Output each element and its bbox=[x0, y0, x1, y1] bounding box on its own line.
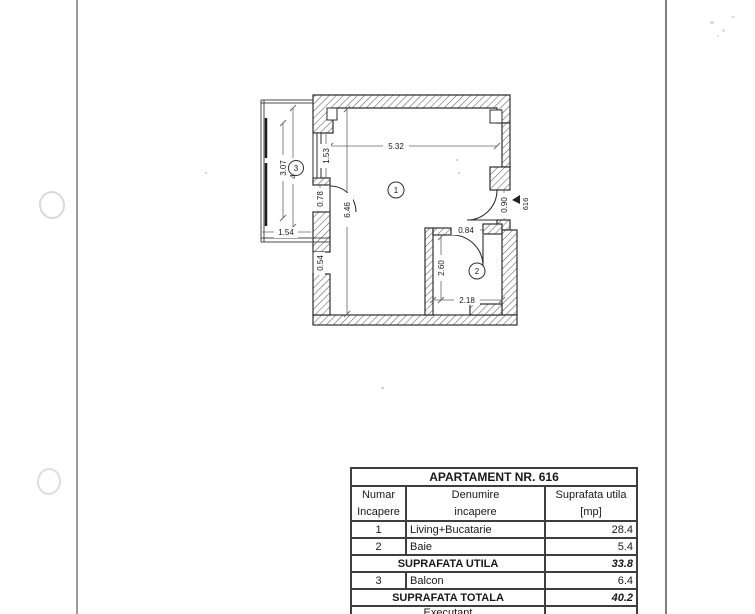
scan-speck bbox=[205, 172, 207, 174]
wall-bath-partition bbox=[425, 228, 433, 315]
scan-speck bbox=[717, 35, 719, 37]
apartment-number-label: 616 bbox=[521, 198, 530, 211]
dim-door-entrance: 0.90 bbox=[500, 197, 509, 213]
dim-window-left: 1.53 bbox=[322, 148, 331, 164]
column-header-denumire: Denumire incapere bbox=[406, 486, 545, 521]
table-row: 3 Balcon 6.4 bbox=[351, 572, 637, 589]
table-row: 2 Baie 5.4 bbox=[351, 538, 637, 555]
room-number-cell: 3 bbox=[351, 572, 406, 589]
total-value: 40.2 bbox=[545, 589, 637, 606]
wall-bath-right bbox=[502, 230, 517, 315]
dim-balcony-inner: 3.07 bbox=[279, 160, 288, 176]
column-header-line: Numar bbox=[353, 487, 404, 504]
floor-plan: 5.32 6.46 1.53 0.78 0.54 3.07 4.15 1.54 … bbox=[252, 85, 542, 335]
executant-label: Executant bbox=[351, 606, 545, 614]
room-number-cell: 1 bbox=[351, 521, 406, 538]
punch-hole bbox=[37, 189, 67, 220]
wall-bath-top bbox=[433, 228, 451, 235]
table-row: SUPRAFATA TOTALA 40.2 bbox=[351, 589, 637, 606]
wall-notch-right bbox=[490, 110, 502, 123]
scan-speck bbox=[722, 29, 725, 32]
table-row: APARTAMENT NR. 616 bbox=[351, 468, 637, 486]
room-area-cell: 28.4 bbox=[545, 521, 637, 538]
table-title: APARTAMENT NR. 616 bbox=[351, 468, 637, 486]
dim-door-balcony: 0.78 bbox=[316, 191, 325, 207]
entrance-arrow-icon bbox=[512, 195, 520, 204]
column-header-suprafata: Suprafata utila [mp] bbox=[545, 486, 637, 521]
scan-speck bbox=[710, 21, 714, 24]
room-number-cell: 2 bbox=[351, 538, 406, 555]
dim-door-bath: 0.84 bbox=[458, 226, 474, 235]
dim-bath-width: 2.18 bbox=[459, 296, 475, 305]
scan-speck bbox=[381, 387, 384, 389]
wall-top bbox=[313, 95, 510, 133]
table-row: Executant bbox=[351, 606, 637, 614]
sheet-left-border bbox=[76, 0, 78, 614]
wall-right-mid bbox=[502, 123, 510, 167]
room-name-cell: Balcon bbox=[406, 572, 545, 589]
wall-right-pilaster bbox=[490, 167, 510, 190]
scan-speck bbox=[458, 172, 460, 174]
room-label-balcon: 3 bbox=[294, 164, 299, 173]
sheet-right-border bbox=[665, 0, 667, 614]
column-header-line: Denumire bbox=[408, 487, 543, 504]
dim-window-small: 0.54 bbox=[316, 255, 325, 271]
room-area-cell: 6.4 bbox=[545, 572, 637, 589]
door-arc-entrance bbox=[467, 190, 497, 220]
table-row: Numar Incapere Denumire incapere Suprafa… bbox=[351, 486, 637, 521]
wall-left-mid bbox=[313, 212, 330, 252]
wall-bath-top-right bbox=[483, 224, 502, 234]
room-label-living: 1 bbox=[394, 186, 399, 195]
dim-balcony-width: 1.54 bbox=[278, 228, 294, 237]
scanned-floorplan-page: 5.32 6.46 1.53 0.78 0.54 3.07 4.15 1.54 … bbox=[0, 0, 755, 614]
door-arc-bath bbox=[452, 235, 483, 266]
room-area-cell: 5.4 bbox=[545, 538, 637, 555]
wall-bottom bbox=[313, 315, 517, 325]
room-label-baie: 2 bbox=[475, 267, 480, 276]
dim-label-bg bbox=[274, 140, 509, 305]
dim-living-width: 5.32 bbox=[388, 142, 404, 151]
subtotal-value: 33.8 bbox=[545, 555, 637, 572]
room-name-cell: Living+Bucatarie bbox=[406, 521, 545, 538]
column-header-line: incapere bbox=[408, 504, 543, 521]
punch-hole bbox=[36, 467, 63, 496]
wall-bath-ledge bbox=[470, 304, 502, 315]
column-header-line: Suprafata utila bbox=[547, 487, 635, 504]
table-row: SUPRAFATA UTILA 33.8 bbox=[351, 555, 637, 572]
dim-bath-height: 2.60 bbox=[437, 260, 446, 276]
table-row: 1 Living+Bucatarie 28.4 bbox=[351, 521, 637, 538]
scan-speck bbox=[731, 16, 735, 18]
apartment-table: APARTAMENT NR. 616 Numar Incapere Denumi… bbox=[350, 467, 638, 614]
column-header-numar: Numar Incapere bbox=[351, 486, 406, 521]
column-header-line: Incapere bbox=[353, 504, 404, 521]
dimension-lines bbox=[262, 105, 505, 317]
column-header-line: [mp] bbox=[547, 504, 635, 521]
executant-value-cell bbox=[545, 606, 637, 614]
room-name-cell: Baie bbox=[406, 538, 545, 555]
subtotal-label: SUPRAFATA UTILA bbox=[351, 555, 545, 572]
total-label: SUPRAFATA TOTALA bbox=[351, 589, 545, 606]
dim-living-height: 6.46 bbox=[343, 202, 352, 218]
wall-left-low bbox=[313, 274, 330, 315]
scan-speck bbox=[456, 159, 458, 161]
wall-left-stub bbox=[313, 178, 330, 185]
wall-notch-left bbox=[327, 108, 337, 120]
